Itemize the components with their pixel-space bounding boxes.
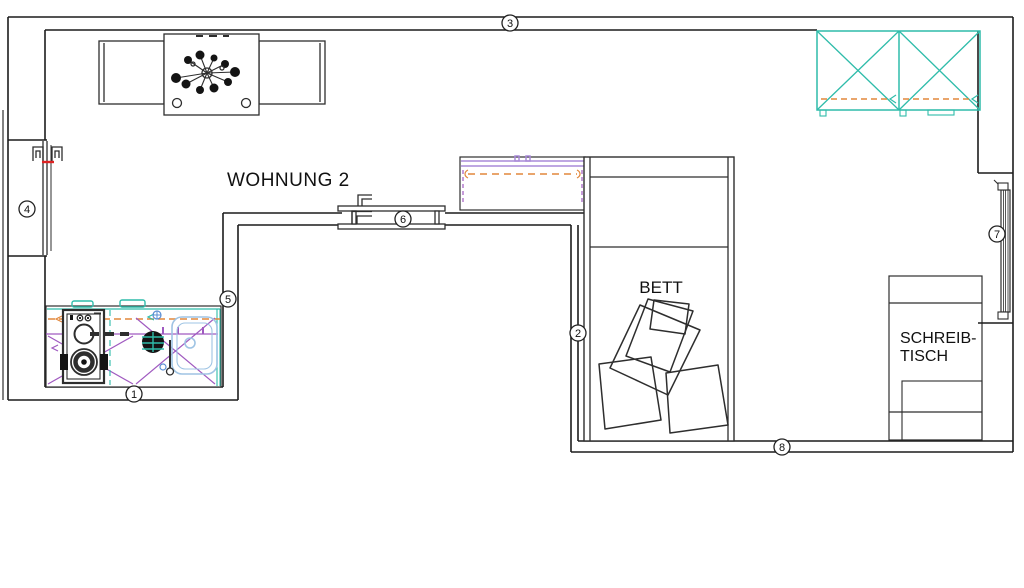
- marker-5: 5: [220, 291, 236, 307]
- svg-text:8: 8: [779, 442, 785, 454]
- svg-text:6: 6: [400, 214, 406, 226]
- kitchen-unit: [46, 300, 221, 387]
- marker-6: 6: [395, 211, 411, 227]
- floor-plan: BETT SCHREIB- TISCH WOHNUNG 2 1 2 3 4 5: [0, 0, 1024, 588]
- bed: BETT: [584, 157, 734, 441]
- svg-text:1: 1: [131, 389, 137, 401]
- window-door-left: [8, 140, 62, 256]
- hinge-bracket-icon: [358, 195, 372, 206]
- svg-text:5: 5: [225, 294, 231, 306]
- marker-2: 2: [570, 325, 586, 341]
- stove-knob: [70, 315, 73, 320]
- marker-4: 4: [19, 201, 35, 217]
- window-radiator-right: [978, 173, 1013, 323]
- wardrobe: [817, 31, 980, 116]
- dining-area: [99, 34, 325, 115]
- svg-text:3: 3: [507, 18, 513, 30]
- apartment-title: WOHNUNG 2: [227, 170, 350, 191]
- svg-text:7: 7: [994, 229, 1000, 241]
- desk-label-line2: TISCH: [900, 348, 948, 365]
- desk: SCHREIB- TISCH: [889, 276, 982, 440]
- sideboard: [460, 156, 585, 210]
- floor-plan-canvas: BETT SCHREIB- TISCH WOHNUNG 2 1 2 3 4 5: [0, 0, 1024, 588]
- chair-left: [99, 41, 164, 104]
- bed-label: BETT: [639, 278, 682, 297]
- hinge-bracket-icon: [52, 147, 62, 161]
- hinge-bracket-icon: [33, 147, 43, 161]
- svg-text:2: 2: [575, 328, 581, 340]
- svg-text:4: 4: [24, 204, 30, 216]
- marker-8: 8: [774, 439, 790, 455]
- door-middle: [338, 195, 445, 229]
- marker-7: 7: [989, 226, 1005, 242]
- marker-3: 3: [502, 15, 518, 31]
- marker-1: 1: [126, 386, 142, 402]
- desk-label-line1: SCHREIB-: [900, 330, 976, 347]
- chair-right: [259, 41, 325, 104]
